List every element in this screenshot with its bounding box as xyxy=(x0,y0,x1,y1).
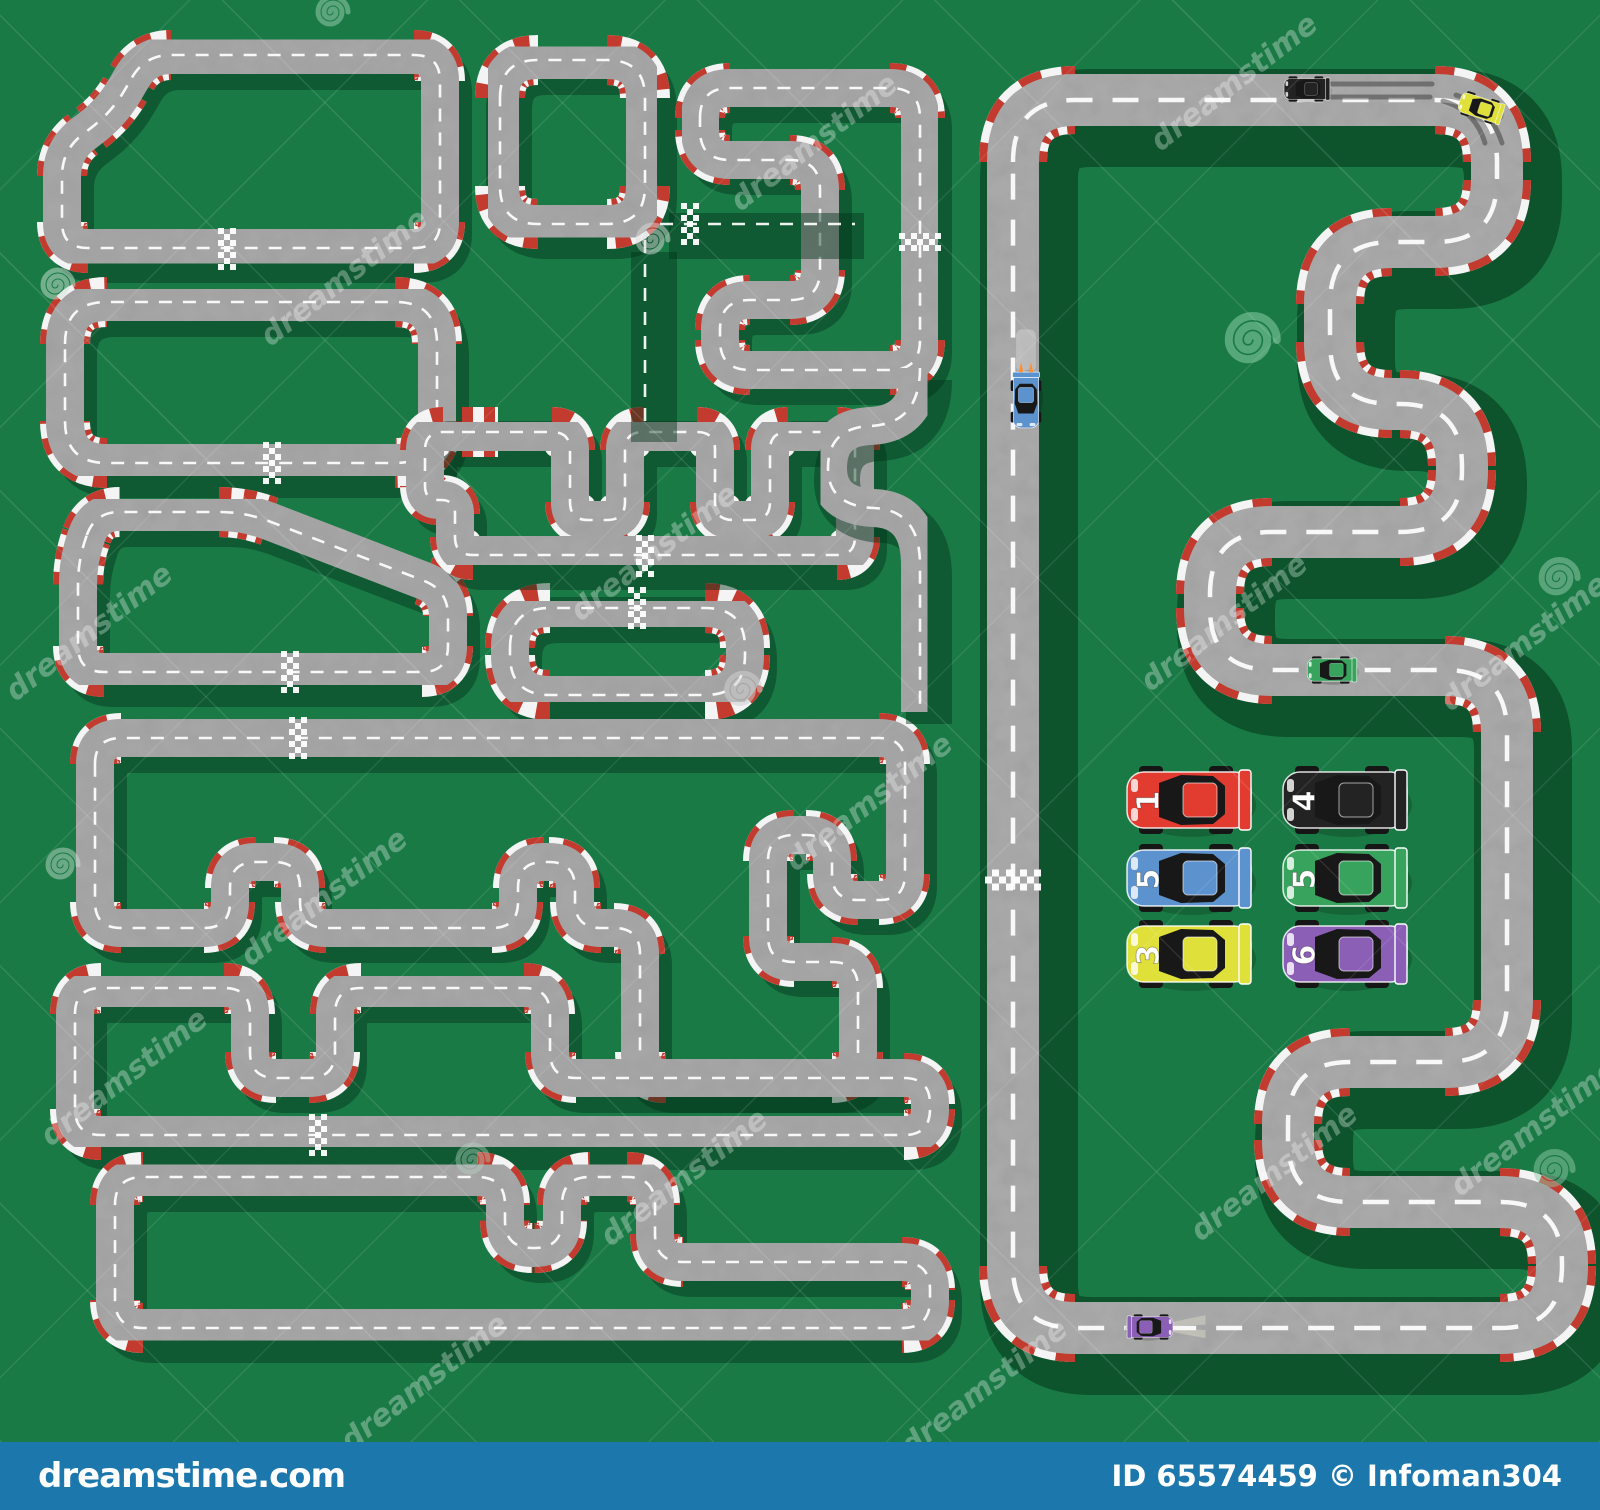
headlight xyxy=(1017,423,1023,426)
car-roof xyxy=(1339,783,1373,817)
scene-svg: 145536dreamstimedreamstimedreamstimedrea… xyxy=(0,0,1600,1442)
race-car-track-black xyxy=(1284,76,1332,102)
car-number: 4 xyxy=(1288,791,1323,812)
headlight xyxy=(1169,1319,1172,1324)
headlight xyxy=(1286,92,1289,97)
rear-wing xyxy=(1395,848,1407,908)
car-number: 6 xyxy=(1288,945,1323,966)
rear-wing xyxy=(1352,658,1357,682)
race-car-red-1: 1 xyxy=(1127,766,1256,837)
race-car-track-green xyxy=(1307,656,1359,684)
car-roof xyxy=(1018,387,1033,402)
car-roof xyxy=(1183,783,1217,817)
headlight xyxy=(1131,779,1138,792)
rear-wing xyxy=(1239,848,1251,908)
illustration-area: 145536dreamstimedreamstimedreamstimedrea… xyxy=(0,0,1600,1442)
stock-image-race-tracks: 145536dreamstimedreamstimedreamstimedrea… xyxy=(0,0,1600,1510)
rear-wing xyxy=(1239,924,1251,984)
headlight xyxy=(1309,673,1312,678)
headlight xyxy=(1287,779,1294,792)
rear-wing xyxy=(1239,770,1251,830)
race-car-yellow-3: 3 xyxy=(1127,920,1256,991)
rear-wing xyxy=(1395,924,1407,984)
race-car-blue-5: 5 xyxy=(1127,844,1256,915)
car-roof xyxy=(1183,937,1217,971)
race-car-green-5: 5 xyxy=(1283,844,1412,915)
rear-wing xyxy=(1013,372,1040,377)
rear-wing xyxy=(1326,78,1330,100)
rear-wing xyxy=(1127,1316,1131,1338)
car-number: 1 xyxy=(1132,791,1167,812)
headlight xyxy=(1286,81,1289,86)
watermark-footer-bar: dreamstime.com ID 65574459 © Infoman304 xyxy=(0,1442,1600,1510)
headlight xyxy=(1030,423,1036,426)
headlight xyxy=(1309,662,1312,667)
track-link-1 xyxy=(645,240,654,442)
race-car-purple-6: 6 xyxy=(1283,920,1412,991)
headlight xyxy=(1169,1330,1172,1335)
car-roof xyxy=(1183,861,1217,895)
headlight xyxy=(1131,857,1138,870)
car-number: 3 xyxy=(1132,945,1167,966)
car-roof xyxy=(1330,663,1344,677)
car-roof xyxy=(1140,1321,1153,1334)
race-car-black-4: 4 xyxy=(1283,766,1412,837)
headlight xyxy=(1131,933,1138,946)
car-roof xyxy=(1305,83,1318,96)
car-number: 5 xyxy=(1288,869,1323,890)
car-roof xyxy=(1339,861,1373,895)
rear-wing xyxy=(1395,770,1407,830)
dreamstime-logo: dreamstime.com xyxy=(38,1456,345,1496)
car-number: 5 xyxy=(1132,869,1167,890)
motion-streak xyxy=(1016,329,1036,372)
headlight xyxy=(1287,933,1294,946)
headlight xyxy=(1287,857,1294,870)
image-credit: ID 65574459 © Infoman304 xyxy=(1111,1459,1562,1493)
car-roof xyxy=(1339,937,1373,971)
